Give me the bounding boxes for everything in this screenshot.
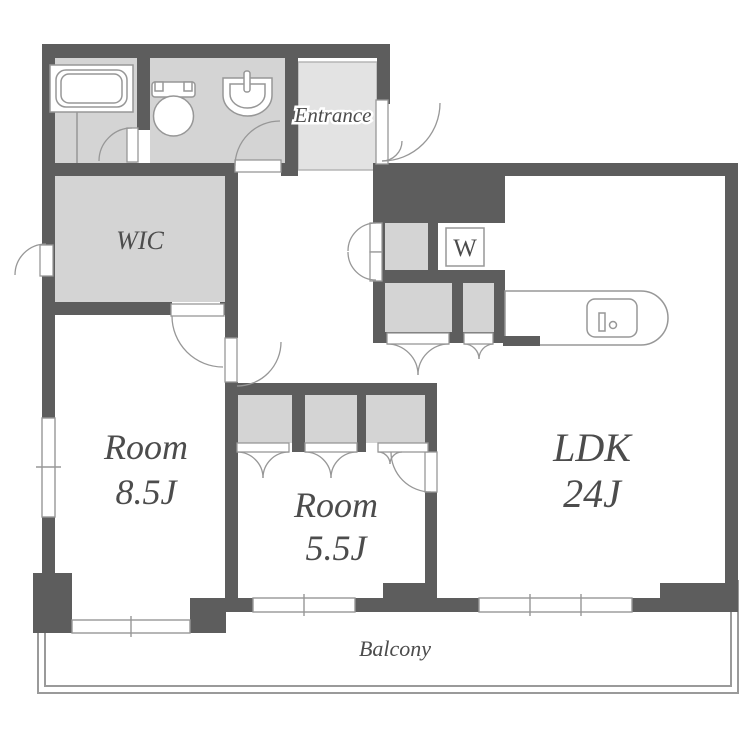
floor-plan-page: Entrance WIC W Room 8.5J Room 5.5J LDK 2… <box>0 0 750 750</box>
storage-niche <box>383 223 428 270</box>
storage-double-door <box>348 223 382 281</box>
window-room1-west <box>36 418 61 517</box>
wall-niche-mid <box>373 270 505 283</box>
wall-step <box>190 598 226 633</box>
wall-stub-under-counter <box>503 336 540 346</box>
wall-right <box>725 163 738 612</box>
entrance-label: Entrance <box>294 103 372 127</box>
wall-stub-powder <box>281 163 298 176</box>
toilet-tank-detail-right <box>184 82 192 91</box>
floor-plan: Entrance WIC W Room 8.5J Room 5.5J LDK 2… <box>0 0 750 750</box>
room2-closet-3 <box>366 395 428 443</box>
room1-name-label: Room <box>103 427 188 467</box>
balcony-label: Balcony <box>359 636 431 661</box>
pillar-bottom-left <box>33 573 72 633</box>
toilet-tank-detail-left <box>155 82 163 91</box>
hall-closet-door-small <box>464 333 493 359</box>
wall-storage-washer <box>428 223 438 273</box>
wall-wic-bottom <box>55 302 172 315</box>
wall-entrance-right <box>377 44 390 104</box>
service-door-west <box>15 244 53 276</box>
ldk-size-label: 24J <box>563 471 623 516</box>
room1-size-label: 8.5J <box>116 472 179 512</box>
washbasin <box>223 71 272 116</box>
wic-door <box>171 304 224 367</box>
toilet <box>152 82 195 136</box>
room2-closet-door-2 <box>305 443 357 478</box>
ldk-name-label: LDK <box>552 425 633 470</box>
room2-door <box>391 452 437 492</box>
room2-name-label: Room <box>293 485 378 525</box>
wall-topsection-bottom <box>42 163 236 176</box>
room2-closet-2 <box>305 395 357 443</box>
wall-room2-top <box>225 383 437 395</box>
bathtub-outer <box>50 65 133 112</box>
wall-niche-block <box>373 163 505 223</box>
room2-size-label: 5.5J <box>306 528 369 568</box>
room2-closet-door-1 <box>237 443 289 478</box>
window-room2-south <box>253 594 355 616</box>
wall-closet-gap1 <box>292 395 305 452</box>
window-room1-south <box>72 616 190 637</box>
wall-left <box>42 44 55 612</box>
washbasin-faucet <box>244 71 250 92</box>
hall-closet-small <box>463 283 494 332</box>
wic-label: WIC <box>116 226 164 255</box>
room1-door <box>225 338 281 386</box>
wall-spine-lower <box>225 382 238 598</box>
bathtub <box>50 65 133 112</box>
window-ldk-south <box>479 594 632 616</box>
washer-label: W <box>453 235 477 262</box>
room2-closet-1 <box>233 395 292 443</box>
wall-top <box>42 44 390 58</box>
hall-closet-large <box>383 283 452 332</box>
toilet-bowl <box>154 96 194 136</box>
pillar-room2-corner <box>383 583 428 600</box>
hall-closet-door-large <box>387 333 449 375</box>
entrance-door <box>376 100 440 164</box>
wall-closet-gap2 <box>357 395 366 452</box>
room2-closet-door-3 <box>378 443 428 464</box>
wall-bath-powder <box>137 58 150 130</box>
